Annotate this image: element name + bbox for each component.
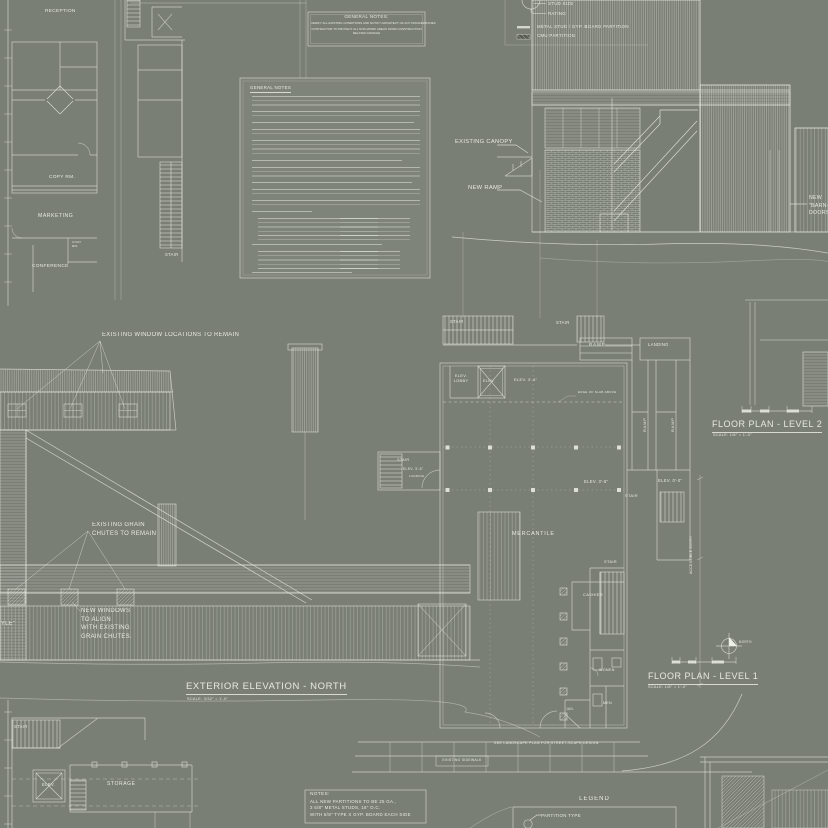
plan-label-stair: STAIR [556, 320, 570, 325]
note-barn-doors-left: NEW "BARN-STYLE" DOORS [0, 611, 16, 637]
legend-rating: RATING [548, 11, 566, 17]
plan-label-stair: STAIR [604, 559, 617, 564]
notes-box-line: ALL NEW PARTITIONS TO BE 25 GA., [310, 799, 396, 805]
room-label-conference: CONFERENCE [32, 264, 69, 270]
spot-elevation: ELEV. 3'-6" [584, 479, 608, 484]
plan-label-ramp-vertical: RAMP [642, 417, 647, 432]
plan-label-ramp: RAMP [589, 342, 606, 348]
notes-sheet-fineprint [252, 111, 420, 119]
floor-plan-level-2-linework [742, 300, 828, 413]
blueprint-sheet: RECEPTION COPY RM. MARKETING CONFERENCE … [0, 0, 828, 828]
note-existing-sidewalk: EXISTING SIDEWALK [436, 758, 488, 762]
room-label-stair: STAIR [14, 724, 28, 729]
notes-sheet-fineprint [252, 129, 420, 137]
legend-title: LEGEND [513, 796, 676, 804]
spot-elevation: ELEV. 0'-0" [658, 478, 682, 483]
note-barn-doors-right: NEW "BARN-STYLE" DOORS [809, 195, 828, 218]
plan-label-stair: STAIR [450, 319, 464, 324]
elevation-title: EXTERIOR ELEVATION - NORTH [186, 681, 347, 695]
notes-sheet-fineprint [252, 182, 412, 186]
level2-title: FLOOR PLAN - LEVEL 2 [712, 419, 822, 433]
note-new-ramp: NEW RAMP [468, 185, 502, 193]
general-notes-line: CONTRACTOR TO PROTECT ALL NON-WORK AREAS… [311, 28, 422, 35]
notes-sheet-fineprint [252, 140, 420, 157]
notes-box-line: WITH 5/8" TYPE X GYP. BOARD EACH SIDE [310, 812, 411, 818]
notes-sheet-fineprint [252, 160, 402, 164]
note-landscape-plan: SEE LANDSCAPE PLAN FOR STREET-SCAPE DESI… [494, 741, 599, 746]
general-notes-title: GENERAL NOTES: [308, 14, 425, 20]
metal-stud-symbol [517, 26, 530, 28]
notes-box-title: NOTES: [310, 792, 330, 798]
corner-fragment [700, 757, 828, 828]
note-accessible-entry: ACCESSIBLE ENTRY [689, 536, 693, 574]
spot-elevation: ELEV. 3'-6" [514, 377, 537, 382]
notes-sheet-fineprint [252, 189, 420, 197]
room-label-marketing: MARKETING [38, 213, 73, 220]
plan-label-landing: LANDING [648, 342, 669, 347]
notes-sheet-fineprint [252, 200, 420, 208]
notes-sheet-fineprint [252, 122, 414, 126]
legend-partition-type: PARTITION TYPE [541, 813, 581, 819]
notes-sheet-fineprint [252, 272, 352, 276]
spot-elevation: ELEV. 3'-6" [403, 467, 423, 471]
note-edge-of-slab: EDGE OF SLAB ABOVE [578, 391, 616, 395]
room-label-coat: COAT RM. [72, 241, 81, 248]
plan-label-women: WOMEN [599, 668, 615, 673]
note-grain-chutes: EXISTING GRAIN CHUTES TO REMAIN [92, 521, 156, 538]
notes-sheet-fineprint [252, 96, 420, 108]
room-label-reception: RECEPTION [45, 9, 76, 15]
legend-cmu: CMU PARTITION [537, 33, 575, 39]
blueprint-linework [0, 0, 828, 828]
notes-sheet-heading: GENERAL NOTES [250, 85, 291, 93]
room-label-elev: ELEV. [42, 782, 55, 787]
plan-label-elev: ELEV. [483, 379, 495, 384]
level1-title: FLOOR PLAN - LEVEL 1 [648, 671, 758, 685]
legend-stud-size: STUD SIZE [548, 1, 574, 7]
north-arrow-icon [716, 633, 742, 659]
note-existing-windows: EXISTING WINDOW LOCATIONS TO REMAIN [102, 332, 239, 340]
plan-label-stair: STAIR [397, 458, 409, 463]
elevation-scale: SCALE: 3/32" = 1'-0" [187, 697, 228, 702]
plan-label-ramp-vertical: RAMP [670, 417, 675, 432]
north-elevation [0, 341, 540, 737]
notes-box-line: 3 5/8" METAL STUDS, 16" O.C. [310, 805, 380, 811]
plan-label-stair: STAIR [625, 493, 638, 498]
level1-scale: SCALE: 1/8" = 1'-0" [648, 685, 687, 690]
basement-plan-linework [4, 700, 200, 828]
plan-label-mercantile: MERCANTILE [512, 531, 555, 538]
general-notes-box-frame [300, 0, 425, 78]
partition-tag-icon [524, 820, 532, 828]
scale-bar-level-2 [742, 406, 812, 413]
general-notes-line: VERIFY ALL EXISTING CONDITIONS AND NOTIF… [311, 22, 422, 26]
note-existing-canopy: EXISTING CANOPY [455, 139, 513, 147]
room-label-storage: STORAGE [107, 781, 136, 788]
notes-sheet-fineprint [340, 218, 410, 240]
scale-bar-level-1 [672, 657, 736, 664]
plan-label-cashier: CASHIER [583, 592, 603, 597]
notes-sheet-fineprint [252, 244, 382, 248]
notes-sheet-subheading [252, 211, 312, 215]
level2-scale: SCALE: 1/8" = 1'-0" [713, 433, 752, 438]
north-label: NORTH [739, 640, 752, 644]
notes-sheet-fineprint [252, 167, 420, 179]
room-label-stair: STAIR [165, 252, 179, 257]
room-label-copy: COPY RM. [49, 175, 75, 181]
plan-label-men: MEN [603, 701, 612, 706]
plan-label-landing-small: LANDING [409, 475, 424, 479]
note-new-windows: NEW WINDOWS TO ALIGN WITH EXISTING GRAIN… [81, 607, 132, 641]
plan-label-jan: JAN. [566, 707, 574, 711]
plan-label-elev-lobby: ELEV. LOBBY [448, 373, 474, 384]
notes-sheet-fineprint [340, 251, 400, 269]
legend-metal-stud: METAL STUD / GYP. BOARD PARTITION [537, 24, 629, 30]
building-section [452, 0, 828, 268]
